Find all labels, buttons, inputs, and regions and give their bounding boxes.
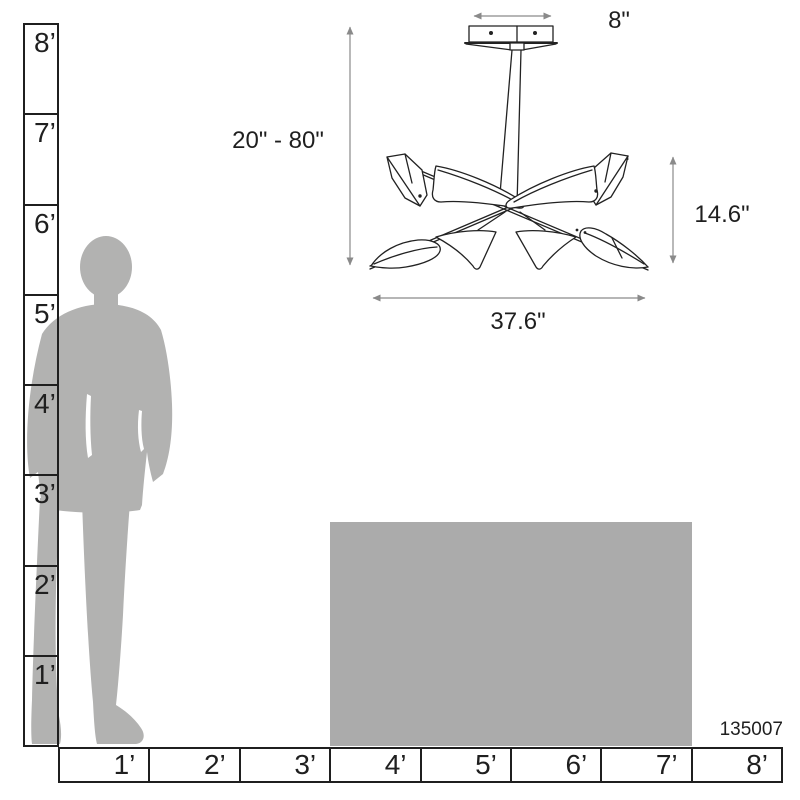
horizontal-ruler: 1’ 2’ 3’ 4’ 5’ 6’ 7’ 8’ [58, 747, 783, 783]
ruler-cell: 3’ [239, 749, 329, 781]
scale-diagram: 8’ 7’ 6’ 5’ 4’ 3’ 2’ 1’ 1’ 2’ 3’ 4’ 5’ 6… [0, 0, 800, 800]
fixture-width-label: 37.6" [490, 308, 545, 336]
ruler-cell: 1’ [60, 749, 148, 781]
ruler-cell: 4’ [329, 749, 419, 781]
ruler-cell: 6’ [25, 206, 57, 296]
canopy-width-label: 8" [608, 7, 630, 35]
ruler-label: 5’ [475, 749, 497, 781]
ruler-label: 7’ [34, 117, 56, 148]
fixture-height-label: 14.6" [694, 201, 749, 229]
ruler-label: 4’ [385, 749, 407, 781]
furniture-scale-block [330, 522, 692, 746]
vertical-ruler: 8’ 7’ 6’ 5’ 4’ 3’ 2’ 1’ [23, 23, 59, 747]
ruler-label: 3’ [294, 749, 316, 781]
ruler-cell: 3’ [25, 476, 57, 566]
ruler-label: 1’ [114, 749, 136, 781]
ruler-cell: 2’ [148, 749, 238, 781]
ruler-label: 6’ [34, 208, 56, 239]
ruler-label: 4’ [34, 388, 56, 419]
ruler-label: 6’ [565, 749, 587, 781]
ruler-cell: 2’ [25, 567, 57, 657]
ruler-label: 2’ [204, 749, 226, 781]
ruler-cell: 7’ [600, 749, 690, 781]
product-number: 135007 [720, 719, 783, 741]
suspension-rods [499, 50, 521, 206]
ruler-label: 8’ [34, 27, 56, 58]
ruler-label: 1’ [34, 659, 56, 690]
ruler-cell: 8’ [691, 749, 781, 781]
ruler-label: 2’ [34, 569, 56, 600]
ruler-cell: 5’ [420, 749, 510, 781]
ruler-cell: 6’ [510, 749, 600, 781]
ruler-cell: 4’ [25, 386, 57, 476]
ruler-cell: 1’ [25, 657, 57, 745]
chandelier-drawing [370, 26, 648, 270]
ruler-cell: 5’ [25, 296, 57, 386]
ruler-label: 8’ [746, 749, 768, 781]
ruler-label: 7’ [656, 749, 678, 781]
ruler-label: 5’ [34, 298, 56, 329]
ruler-cell: 8’ [25, 25, 57, 115]
ruler-cell: 7’ [25, 115, 57, 205]
ceiling-canopy [465, 26, 557, 50]
drop-range-label: 20" - 80" [232, 127, 324, 155]
ruler-label: 3’ [34, 478, 56, 509]
